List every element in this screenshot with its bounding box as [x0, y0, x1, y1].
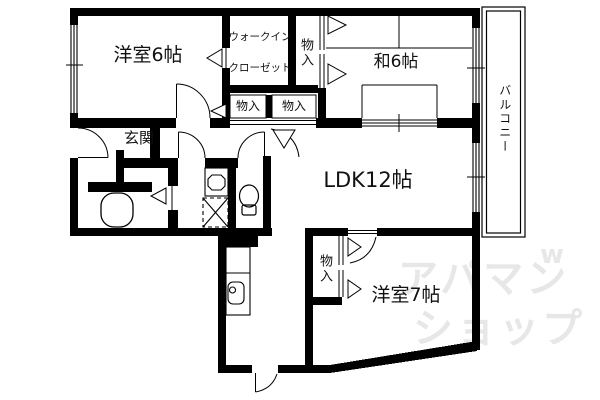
japanese-closet-doors: [320, 16, 324, 88]
room-label-storage-a: 物入: [229, 100, 267, 114]
room-label-genkan: 玄関: [116, 130, 162, 147]
closet-door-marker-2: [328, 64, 346, 84]
room-label-storage-bottom: 物入: [316, 242, 331, 296]
room-label-wic-line2: クローゼット: [227, 62, 293, 74]
kitchen-counter: [226, 247, 250, 315]
toilet-door: [238, 132, 265, 158]
window-bedroom6-west: [66, 25, 83, 113]
room-label-storage-top: 物入: [297, 28, 312, 78]
closet-door-marker-1: [328, 16, 346, 34]
storage-bottom-doors: [339, 236, 343, 297]
room-label-bedroom6: 洋室6帖: [100, 45, 196, 67]
toilet-icon: [240, 185, 259, 215]
washing-machine-pan-icon: [203, 198, 228, 227]
floorplan: アパマン ショップ w: [0, 0, 600, 400]
washbasin-icon: [205, 168, 228, 196]
bedroom6-door-marker: [211, 104, 226, 118]
kitchen-sink-icon: [228, 282, 244, 304]
sliding-doors-japanese-ldk: [362, 114, 437, 132]
washroom-door: [179, 132, 206, 158]
room-label-wic-line1: ウォークイン: [228, 31, 292, 43]
faucet-icon: [230, 287, 236, 293]
room-label-bedroom7: 洋室7帖: [356, 285, 456, 307]
room-label-japanese-room: 和6帖: [346, 53, 446, 73]
kitchen-back-door: [256, 373, 278, 392]
storage-bottom-marker-1: [348, 238, 361, 256]
room-label-balcony: バルコニー: [497, 74, 511, 164]
bathtub-icon: [101, 193, 133, 227]
bathroom-door-marker: [151, 188, 166, 204]
room-label-ldk: LDK12帖: [298, 168, 438, 192]
room-label-storage-b: 物入: [274, 100, 314, 114]
entrance-door: [78, 128, 108, 158]
slanted-wall: [330, 341, 477, 373]
bedroom6-door: [177, 84, 211, 118]
wic-door-marker: [207, 49, 222, 67]
